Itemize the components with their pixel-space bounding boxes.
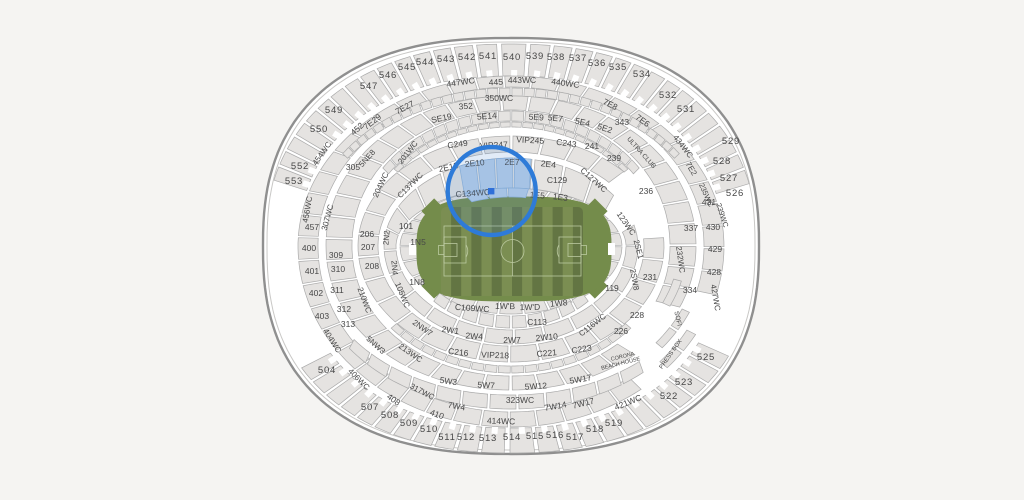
svg-text:510: 510: [420, 424, 438, 435]
svg-text:5W12: 5W12: [524, 380, 547, 391]
svg-text:1N8: 1N8: [409, 277, 425, 287]
svg-text:522: 522: [660, 391, 678, 402]
svg-text:401: 401: [305, 266, 319, 276]
svg-text:457: 457: [305, 222, 319, 232]
svg-text:402: 402: [309, 288, 323, 298]
svg-text:5E14: 5E14: [477, 110, 498, 121]
svg-text:509: 509: [400, 418, 418, 429]
svg-text:1W'D: 1W'D: [520, 302, 541, 312]
svg-text:546: 546: [379, 70, 397, 81]
svg-text:101: 101: [399, 221, 413, 231]
svg-text:532: 532: [659, 90, 677, 101]
svg-text:534: 534: [633, 69, 651, 80]
svg-text:208: 208: [365, 261, 379, 271]
svg-text:313: 313: [341, 319, 355, 329]
svg-text:236: 236: [639, 186, 653, 196]
svg-text:1N5: 1N5: [410, 237, 426, 247]
svg-text:514: 514: [503, 432, 521, 443]
svg-text:309: 309: [329, 250, 343, 260]
svg-text:C129: C129: [547, 175, 568, 185]
svg-text:5W7: 5W7: [477, 380, 495, 391]
svg-text:511: 511: [438, 432, 456, 443]
svg-text:536: 536: [588, 58, 606, 69]
svg-text:334: 334: [683, 285, 697, 295]
svg-text:525: 525: [697, 352, 715, 363]
svg-text:545: 545: [398, 62, 416, 73]
svg-text:504: 504: [318, 365, 336, 376]
svg-text:541: 541: [479, 51, 497, 62]
svg-text:VIP218: VIP218: [481, 350, 509, 361]
svg-text:5E7: 5E7: [547, 112, 564, 124]
svg-text:403: 403: [315, 311, 329, 321]
svg-text:513: 513: [479, 433, 497, 444]
svg-text:2W10: 2W10: [535, 331, 558, 343]
svg-text:312: 312: [337, 304, 351, 314]
svg-text:517: 517: [566, 432, 584, 443]
svg-text:552: 552: [291, 161, 309, 172]
svg-text:512: 512: [457, 432, 475, 443]
svg-text:515: 515: [526, 431, 544, 442]
svg-text:400: 400: [302, 243, 316, 253]
svg-text:2N4: 2N4: [389, 260, 399, 276]
svg-text:508: 508: [381, 410, 399, 421]
svg-text:352: 352: [458, 101, 473, 112]
svg-text:523: 523: [675, 377, 693, 388]
svg-text:507: 507: [361, 402, 379, 413]
svg-text:518: 518: [586, 424, 604, 435]
svg-text:542: 542: [458, 52, 476, 63]
svg-text:528: 528: [713, 156, 731, 167]
svg-text:311: 311: [330, 285, 344, 295]
svg-text:C221: C221: [536, 347, 557, 359]
svg-text:529: 529: [722, 136, 740, 147]
svg-text:538: 538: [547, 52, 565, 63]
svg-text:516: 516: [546, 430, 564, 441]
svg-text:206: 206: [360, 229, 374, 239]
svg-text:2W7: 2W7: [503, 335, 521, 345]
svg-text:445: 445: [488, 77, 503, 88]
svg-text:550: 550: [310, 124, 328, 135]
svg-text:539: 539: [526, 51, 544, 62]
svg-text:443WC: 443WC: [508, 75, 536, 85]
svg-text:241: 241: [585, 141, 599, 151]
svg-text:1W8: 1W8: [550, 297, 569, 309]
svg-text:323WC: 323WC: [506, 395, 534, 405]
svg-text:226: 226: [614, 326, 628, 336]
svg-text:527: 527: [720, 173, 738, 184]
svg-text:519: 519: [605, 418, 623, 429]
svg-text:207: 207: [361, 242, 375, 252]
svg-text:310: 310: [331, 264, 345, 274]
svg-text:544: 544: [416, 57, 434, 68]
svg-text:526: 526: [726, 188, 744, 199]
svg-text:531: 531: [677, 104, 695, 115]
svg-text:C216: C216: [448, 346, 470, 358]
svg-text:337: 337: [684, 223, 698, 233]
svg-text:547: 547: [360, 81, 378, 92]
svg-text:540: 540: [503, 52, 521, 63]
svg-text:1W'B: 1W'B: [495, 301, 516, 311]
svg-text:429: 429: [708, 244, 722, 254]
svg-text:414WC: 414WC: [487, 416, 516, 427]
svg-text:231: 231: [643, 272, 657, 282]
svg-text:543: 543: [437, 54, 455, 65]
svg-text:428: 428: [707, 267, 721, 277]
svg-text:5E9: 5E9: [528, 111, 544, 122]
svg-text:549: 549: [325, 105, 343, 116]
svg-text:350WC: 350WC: [485, 93, 513, 103]
svg-text:228: 228: [630, 310, 644, 320]
svg-text:430: 430: [706, 222, 720, 232]
svg-text:C113: C113: [527, 317, 547, 327]
svg-text:537: 537: [569, 53, 587, 64]
svg-text:553: 553: [285, 176, 303, 187]
svg-text:239: 239: [607, 153, 621, 163]
svg-text:2N2: 2N2: [381, 230, 391, 246]
svg-text:1E3: 1E3: [552, 191, 569, 203]
svg-text:VIP245: VIP245: [516, 134, 545, 145]
svg-text:2W4: 2W4: [465, 330, 483, 341]
svg-text:119: 119: [605, 283, 619, 293]
svg-text:535: 535: [609, 62, 627, 73]
svg-text:2E4: 2E4: [540, 158, 557, 170]
svg-text:343: 343: [615, 117, 629, 127]
